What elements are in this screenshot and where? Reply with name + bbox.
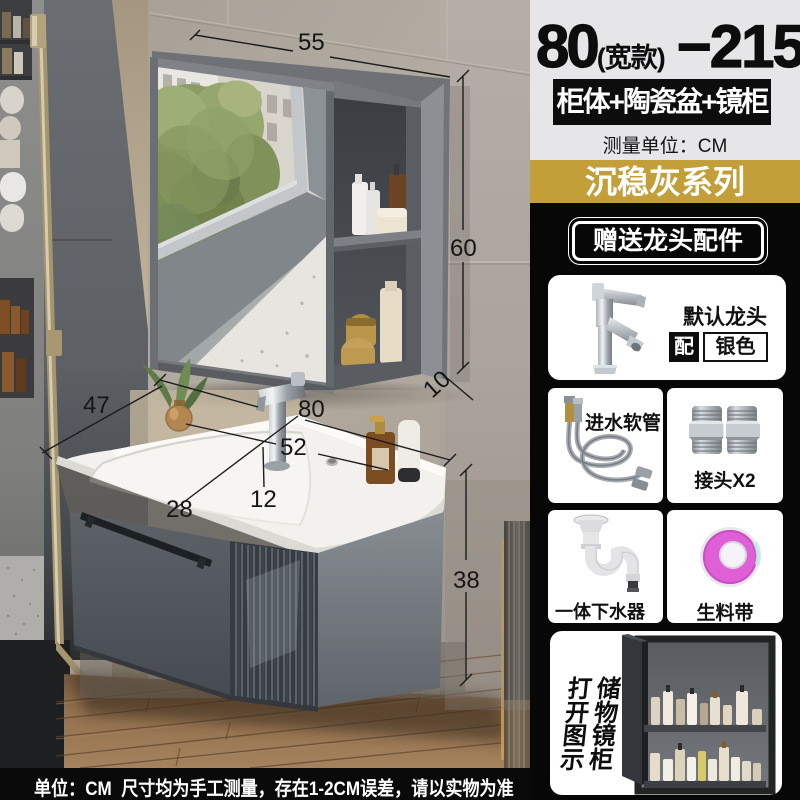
svg-text:47: 47 <box>83 392 110 419</box>
svg-text:52: 52 <box>280 434 307 461</box>
svg-text:12: 12 <box>250 486 277 513</box>
svg-text:28: 28 <box>166 496 193 523</box>
svg-text:55: 55 <box>298 29 325 56</box>
svg-text:38: 38 <box>453 567 480 594</box>
svg-text:60: 60 <box>450 235 477 262</box>
svg-text:80: 80 <box>298 396 325 423</box>
